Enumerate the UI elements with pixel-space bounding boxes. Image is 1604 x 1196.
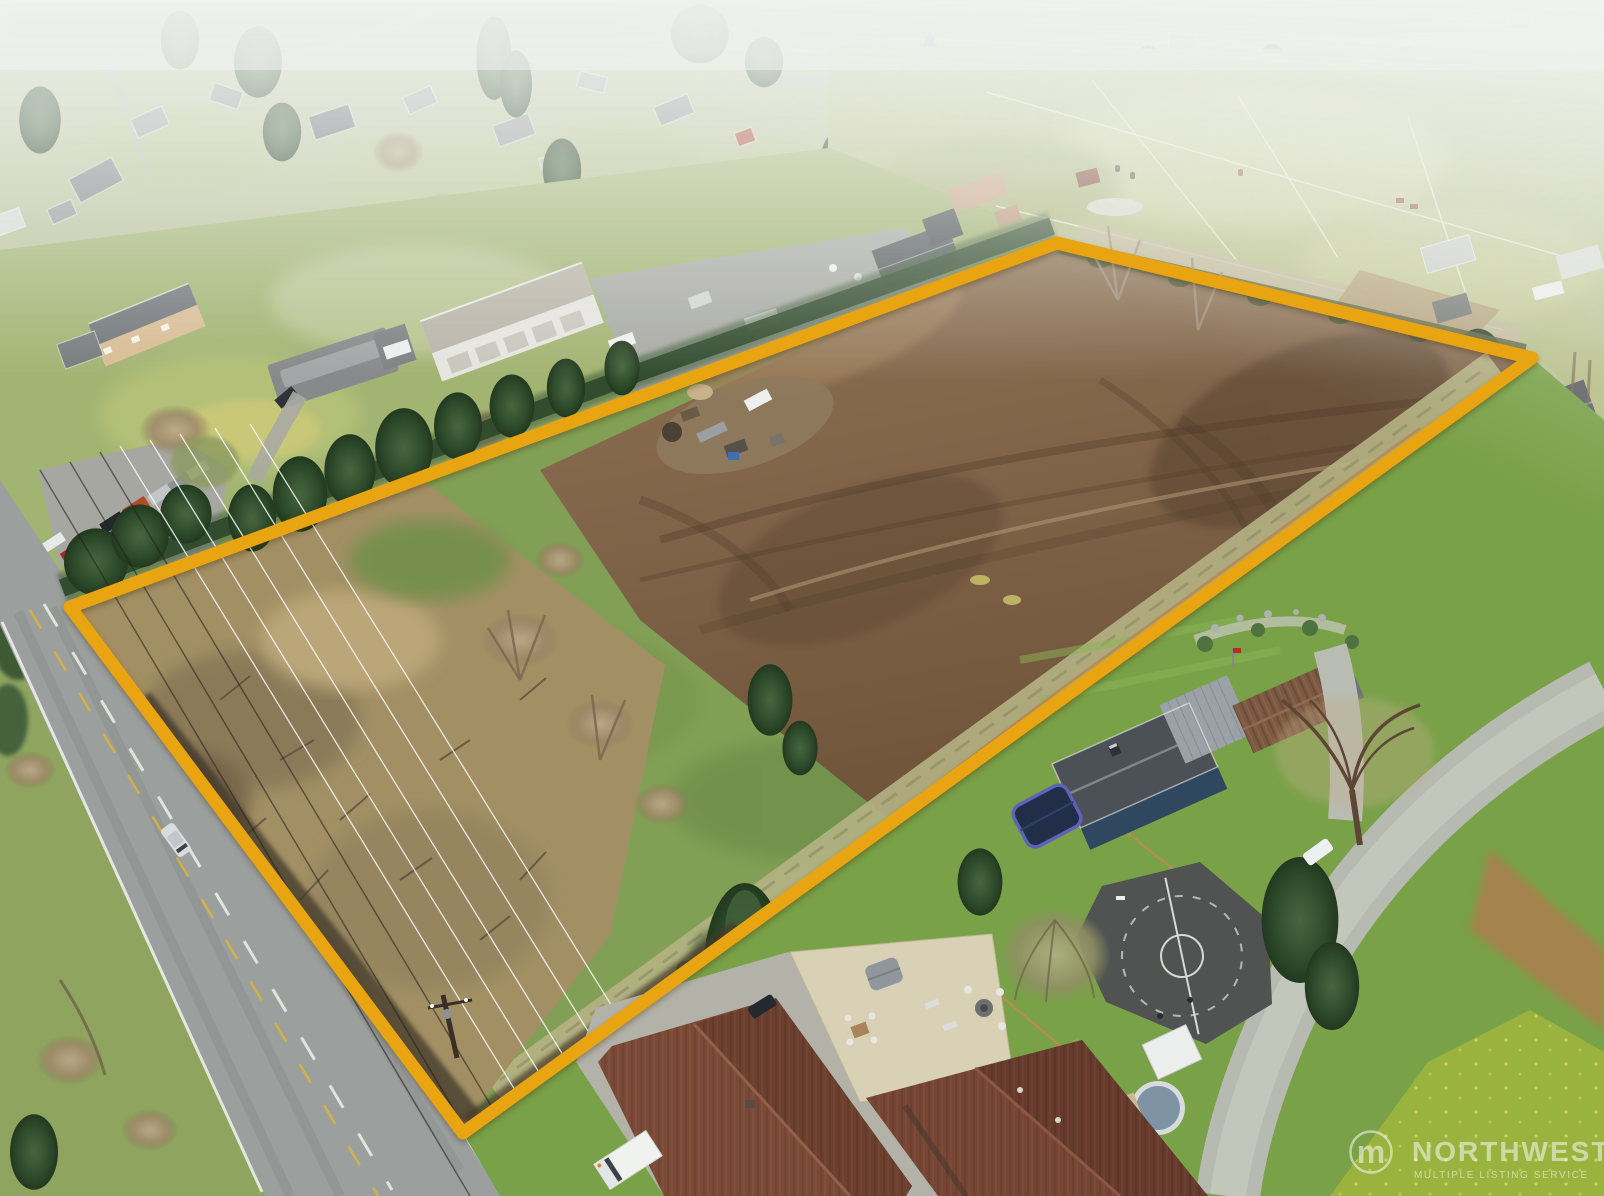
haze-right	[620, 0, 1604, 640]
aerial-photo-stage: m NORTHWEST MULTIPLE LISTING SERVICE	[0, 0, 1604, 1196]
flag	[1233, 648, 1241, 653]
hoop	[1116, 896, 1125, 900]
watermark-brand: NORTHWEST	[1412, 1136, 1604, 1167]
mls-logo-glyph: m	[1357, 1134, 1385, 1170]
aerial-photo: m NORTHWEST MULTIPLE LISTING SERVICE	[0, 0, 1604, 1196]
watermark-tagline: MULTIPLE LISTING SERVICE	[1414, 1170, 1589, 1181]
